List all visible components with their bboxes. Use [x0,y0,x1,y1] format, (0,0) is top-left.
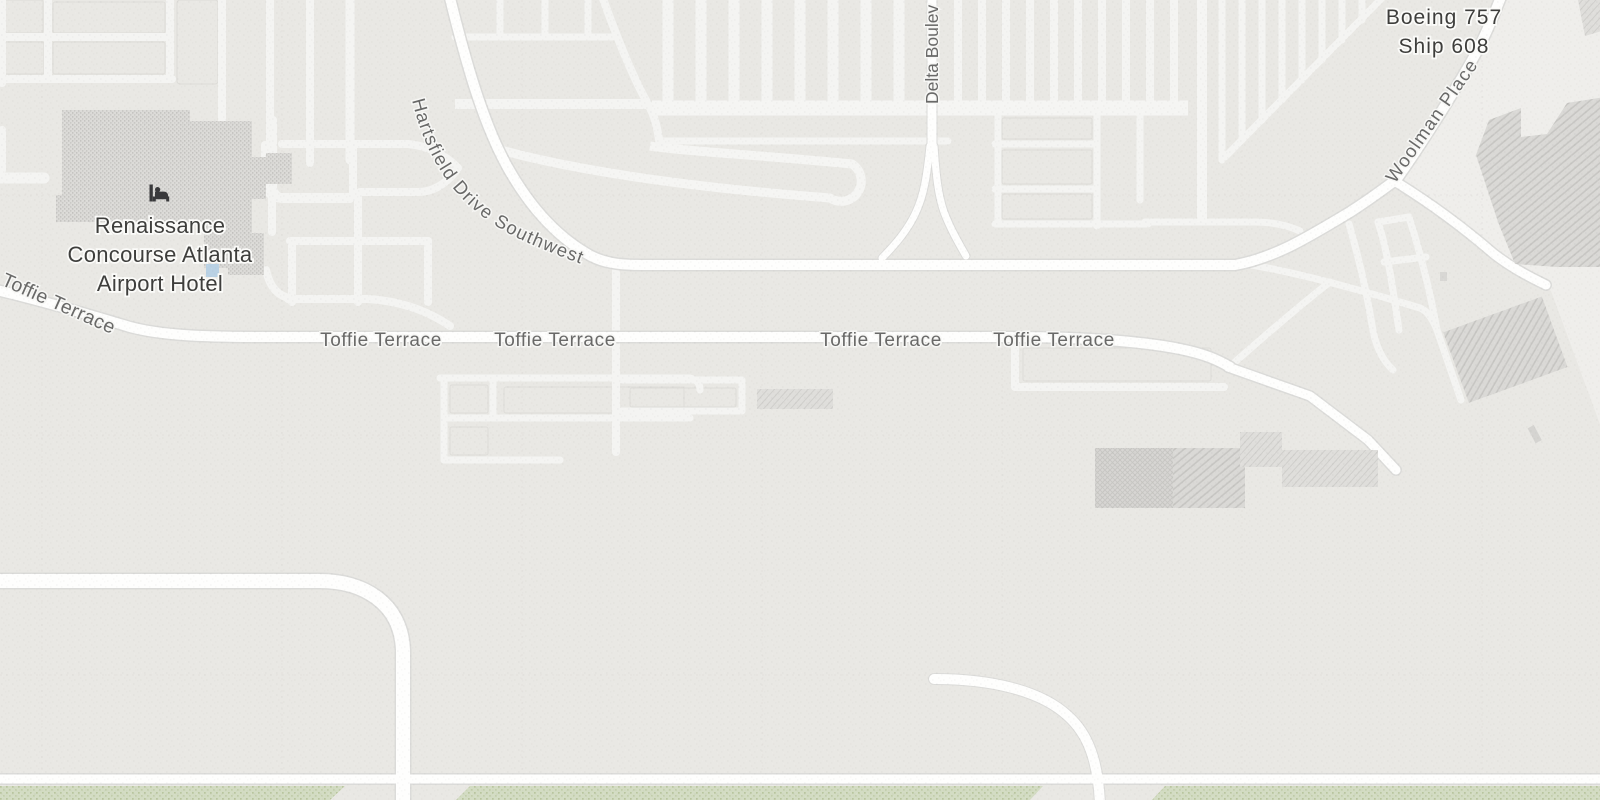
svg-text:Boeing 757: Boeing 757 [1386,6,1502,29]
svg-text:Renaissance: Renaissance [95,213,226,238]
svg-text:Toffie Terrace: Toffie Terrace [320,330,442,351]
svg-text:Toffie Terrace: Toffie Terrace [993,330,1115,351]
svg-text:Toffie Terrace: Toffie Terrace [494,330,616,351]
svg-text:Ship 608: Ship 608 [1399,35,1490,58]
svg-text:Concourse Atlanta: Concourse Atlanta [68,242,253,267]
svg-text:Delta Boulev: Delta Boulev [922,5,942,104]
svg-text:Toffie Terrace: Toffie Terrace [820,330,942,351]
svg-text:Airport Hotel: Airport Hotel [97,271,223,296]
